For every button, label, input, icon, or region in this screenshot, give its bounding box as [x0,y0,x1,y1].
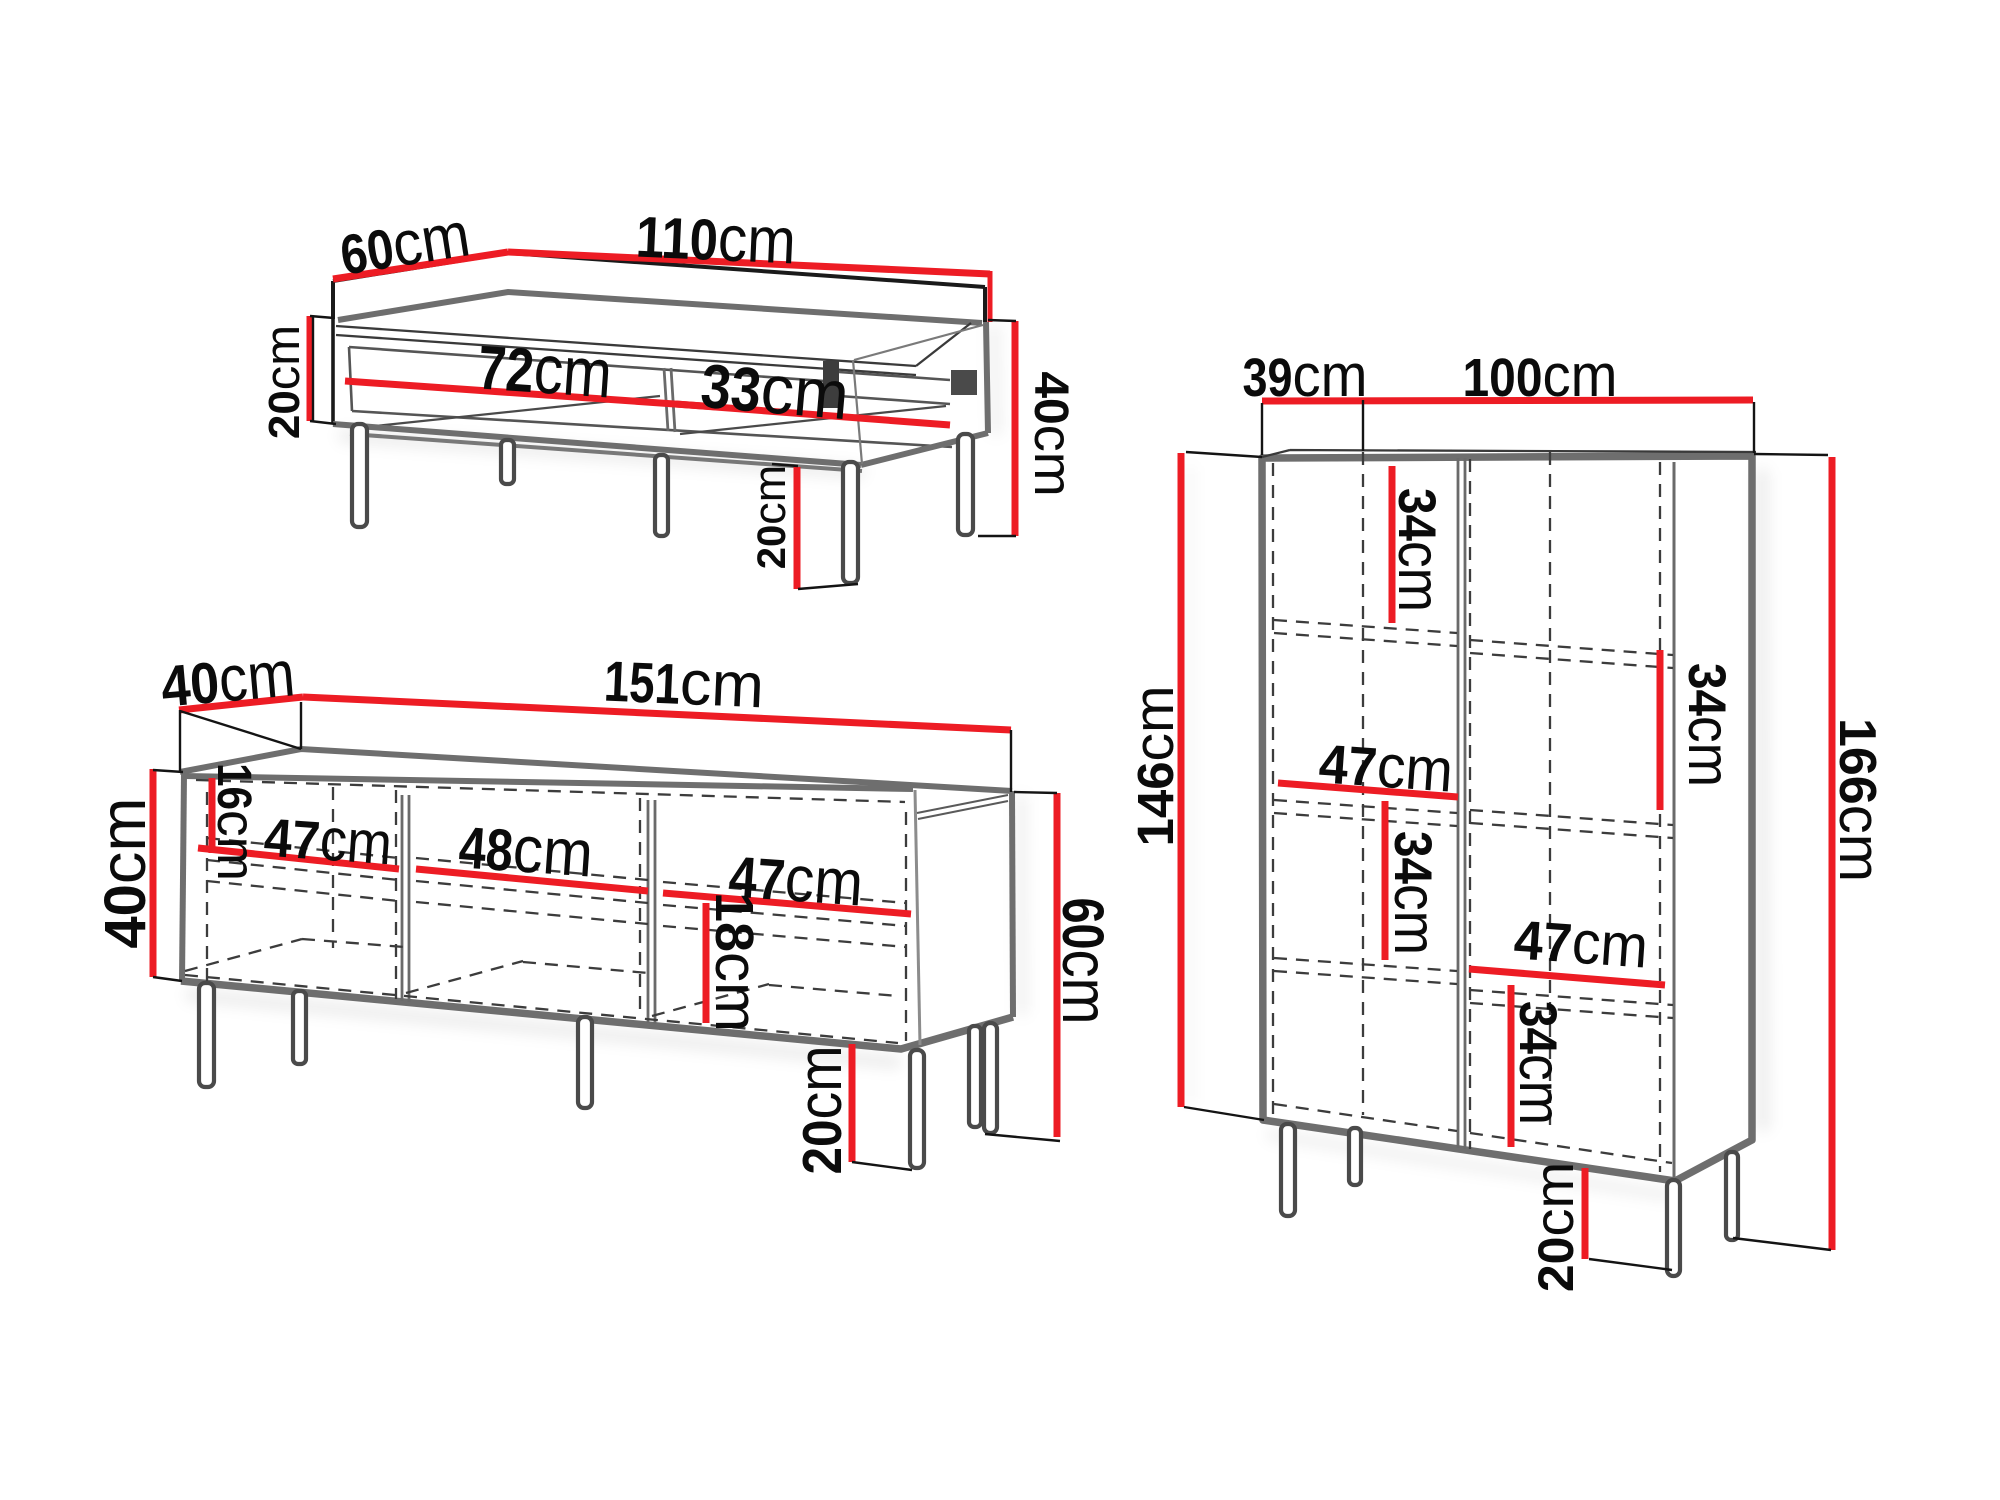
svg-text:47cm: 47cm [262,802,394,878]
svg-text:20cm: 20cm [256,325,310,439]
svg-text:60cm: 60cm [1049,898,1122,1025]
svg-text:47cm: 47cm [1317,727,1455,804]
svg-text:40cm: 40cm [1023,371,1083,496]
svg-text:20cm: 20cm [1522,1162,1585,1292]
svg-text:20cm: 20cm [744,465,795,570]
svg-text:16cm: 16cm [206,763,266,881]
svg-text:40cm: 40cm [86,797,159,948]
svg-text:39cm: 39cm [1243,342,1368,409]
svg-text:72cm: 72cm [476,326,615,412]
svg-text:34cm: 34cm [1507,1001,1573,1125]
svg-text:166cm: 166cm [1827,718,1892,882]
svg-text:47cm: 47cm [1512,903,1650,980]
svg-text:48cm: 48cm [457,807,596,890]
svg-text:146cm: 146cm [1122,685,1186,846]
svg-text:18cm: 18cm [703,892,770,1032]
svg-text:34cm: 34cm [1676,663,1742,787]
svg-text:34cm: 34cm [1386,488,1452,612]
svg-text:34cm: 34cm [1382,831,1448,955]
svg-text:151cm: 151cm [603,645,766,722]
svg-text:110cm: 110cm [635,198,798,278]
svg-text:100cm: 100cm [1463,342,1618,409]
svg-text:20cm: 20cm [786,1046,855,1175]
svg-text:33cm: 33cm [698,345,852,435]
